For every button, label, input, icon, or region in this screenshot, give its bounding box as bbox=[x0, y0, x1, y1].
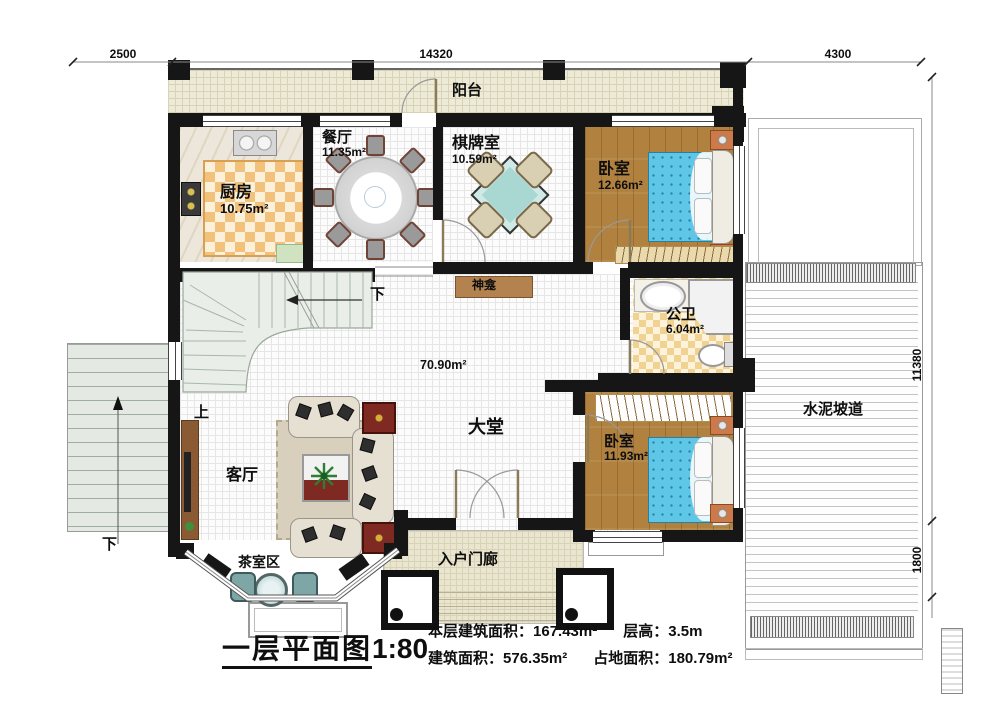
kitchen-sink bbox=[233, 130, 277, 156]
bay-corner bbox=[176, 543, 194, 559]
chair bbox=[230, 572, 256, 602]
wall-left bbox=[168, 113, 180, 557]
room-area: 11.35m² bbox=[322, 146, 366, 159]
balcony-door-opening bbox=[402, 113, 436, 127]
bedroom1-window bbox=[612, 115, 714, 127]
wall-kitchen-dining bbox=[303, 127, 313, 272]
label-balcony: 阳台 bbox=[452, 83, 482, 99]
nightstand bbox=[710, 130, 735, 150]
ramp-fence-bottom bbox=[750, 616, 914, 638]
plan-title: 一层平面图 bbox=[222, 634, 372, 669]
label-bedroom2: 卧室 11.93m² bbox=[604, 434, 648, 462]
footer-row: 建筑面积：576.35m² 占地面积：180.79m² bbox=[428, 647, 758, 668]
balcony-column bbox=[352, 60, 374, 80]
coffee-table bbox=[302, 454, 350, 502]
dining-table-center bbox=[364, 186, 386, 208]
room-name: 棋牌室 bbox=[452, 136, 500, 153]
sofa bbox=[288, 396, 360, 438]
stat-height: 层高：3.5m bbox=[623, 620, 702, 641]
chair bbox=[366, 239, 385, 260]
bed-pillow bbox=[694, 158, 712, 194]
room-area: 10.59m² bbox=[452, 153, 500, 166]
label-ramp: 水泥坡道 bbox=[803, 402, 863, 418]
label-shrine: 神龛 bbox=[472, 279, 496, 292]
label-hall-area: 70.90m² bbox=[420, 359, 467, 372]
hall-floor bbox=[180, 274, 633, 540]
sofa-pillow bbox=[329, 524, 345, 540]
wall-bedroom1-bottom bbox=[585, 262, 593, 274]
label-living: 客厅 bbox=[226, 468, 258, 485]
wall-chess-bottom bbox=[433, 262, 585, 274]
label-hall: 大堂 bbox=[468, 418, 504, 437]
label-tea: 茶室区 bbox=[238, 555, 280, 570]
bay-corner bbox=[384, 543, 402, 559]
balcony-column bbox=[168, 60, 190, 80]
stat-floor-area: 本层建筑面积：167.43m² bbox=[428, 620, 597, 641]
dim-top-4300: 4300 bbox=[810, 47, 866, 61]
sofa-pillow bbox=[337, 404, 355, 422]
nightstand bbox=[710, 504, 735, 523]
wall-right-lower bbox=[733, 506, 743, 542]
exterior-stairs bbox=[67, 343, 170, 532]
sofa bbox=[352, 428, 394, 524]
sofa bbox=[290, 518, 362, 558]
label-stairs-down: 下 bbox=[370, 287, 385, 303]
ramp-surface bbox=[746, 282, 918, 616]
label-bathroom: 公卫 6.04m² bbox=[666, 307, 704, 335]
sofa-pillow bbox=[361, 465, 378, 482]
room-area: 12.66m² bbox=[598, 179, 643, 192]
label-bedroom1: 卧室 12.66m² bbox=[598, 162, 643, 191]
wall-dining-chess bbox=[433, 113, 443, 220]
kitchen-mat bbox=[276, 244, 304, 263]
corner-column bbox=[720, 62, 746, 88]
terrace-outline-inner bbox=[758, 128, 914, 264]
label-kitchen: 厨房 10.75m² bbox=[220, 185, 268, 215]
room-name: 餐厅 bbox=[322, 130, 366, 146]
nightstand bbox=[710, 416, 735, 435]
room-name: 厨房 bbox=[220, 185, 268, 202]
label-stairs-up: 上 bbox=[194, 405, 209, 421]
room-name: 卧室 bbox=[598, 162, 643, 179]
chair bbox=[313, 188, 334, 207]
sofa-pillow bbox=[301, 526, 318, 543]
wall-chess-bedroom1 bbox=[573, 113, 585, 264]
legend-strip bbox=[941, 628, 963, 694]
wall-right-lower bbox=[733, 380, 743, 430]
sofa-pillow bbox=[359, 493, 376, 510]
ramp-apron bbox=[745, 648, 923, 660]
bay-diagonal-block bbox=[201, 553, 232, 581]
side-table bbox=[362, 402, 396, 434]
room-area: 11.93m² bbox=[604, 450, 648, 463]
footer-row: 本层建筑面积：167.43m² 层高：3.5m bbox=[428, 620, 758, 641]
bed-headboard bbox=[712, 150, 734, 244]
sofa-pillow bbox=[295, 403, 312, 420]
bed-pillow bbox=[694, 198, 712, 234]
chair bbox=[292, 572, 318, 602]
wall-hall-bottom bbox=[408, 518, 456, 530]
wall-hall-bottom bbox=[518, 518, 575, 530]
balcony-column bbox=[543, 60, 565, 80]
ramp-fence-top bbox=[746, 263, 916, 283]
tea-table bbox=[254, 573, 288, 607]
room-name: 卧室 bbox=[604, 434, 648, 450]
wall-bedroom2-left bbox=[573, 380, 585, 415]
dim-right-11380: 11380 bbox=[910, 335, 924, 395]
label-chess: 棋牌室 10.59m² bbox=[452, 136, 500, 165]
bed-pillow bbox=[694, 442, 712, 478]
room-area: 10.75m² bbox=[220, 202, 268, 216]
dim-top-14320: 14320 bbox=[405, 47, 467, 61]
bedroom2-bottom-window bbox=[593, 531, 662, 543]
dining-window bbox=[320, 115, 390, 127]
floor-plan-canvas: 2500 14320 4300 11380 1800 阳台 餐厅 11.35m²… bbox=[0, 0, 1000, 706]
label-porch: 入户门廊 bbox=[438, 552, 498, 568]
bedroom1-right-window bbox=[733, 146, 745, 234]
cabinet-plant bbox=[185, 522, 194, 531]
footer-stats: 本层建筑面积：167.43m² 层高：3.5m 建筑面积：576.35m² 占地… bbox=[428, 620, 758, 674]
wall-bath-top bbox=[620, 268, 742, 278]
bedroom2-window-sill bbox=[588, 542, 664, 556]
stat-build-area: 建筑面积：576.35m² bbox=[428, 647, 567, 668]
plan-scale: 1:80 bbox=[372, 634, 428, 663]
wall-bath-left bbox=[620, 278, 630, 340]
tv bbox=[184, 452, 191, 512]
wall-bedroom2-bottom bbox=[573, 530, 595, 542]
stove bbox=[181, 182, 201, 216]
dim-top-2500: 2500 bbox=[98, 47, 148, 61]
stat-land-area: 占地面积：180.79m² bbox=[593, 647, 732, 668]
sofa-pillow bbox=[360, 438, 376, 454]
living-left-window bbox=[168, 342, 182, 380]
chair bbox=[366, 135, 385, 156]
wall-bedroom2-bottom bbox=[660, 530, 742, 542]
kitchen-window bbox=[203, 115, 301, 127]
label-dining: 餐厅 11.35m² bbox=[322, 130, 366, 158]
room-name: 公卫 bbox=[666, 307, 704, 323]
dim-right-1800: 1800 bbox=[910, 532, 924, 588]
wall-mid-a bbox=[168, 268, 375, 282]
label-ext-stairs-down: 下 bbox=[102, 537, 117, 553]
column-dot bbox=[390, 608, 403, 621]
room-area: 6.04m² bbox=[666, 323, 704, 336]
sofa-pillow bbox=[318, 402, 334, 418]
bedroom2-right-window bbox=[733, 428, 745, 508]
